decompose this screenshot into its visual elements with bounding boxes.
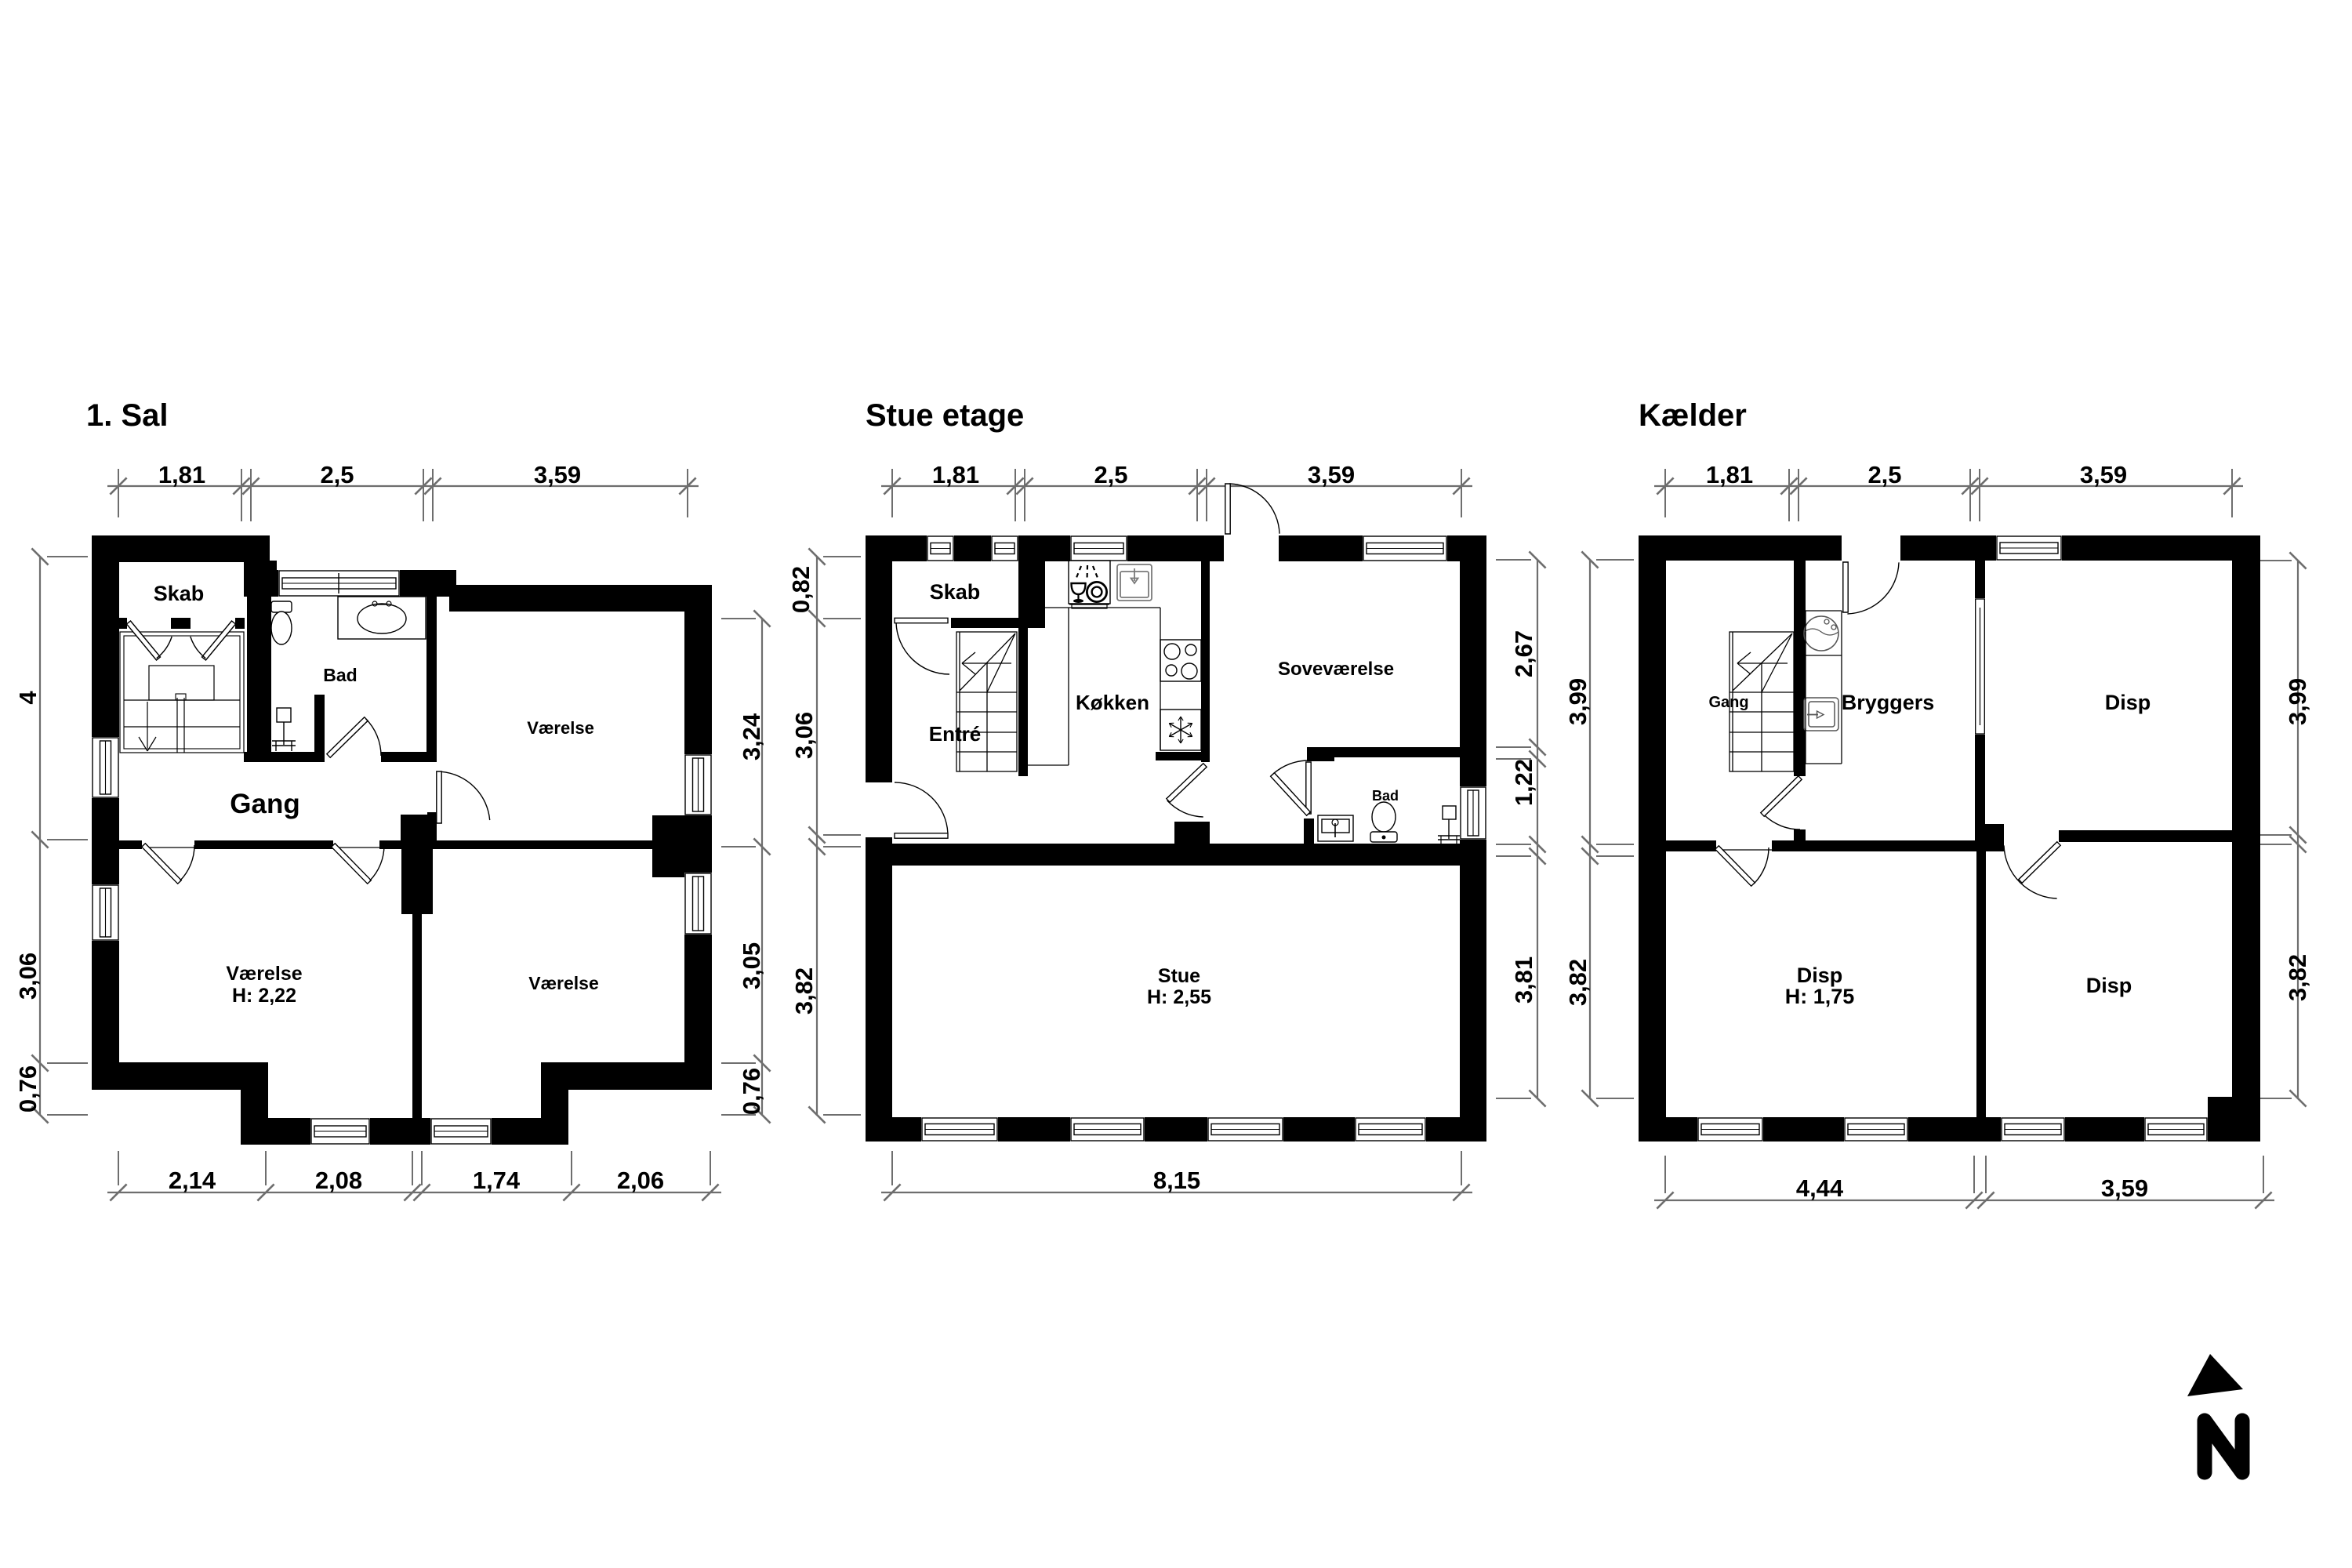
- svg-text:3,06: 3,06: [14, 953, 42, 1000]
- svg-text:1,81: 1,81: [1706, 461, 1753, 488]
- svg-text:2,06: 2,06: [617, 1167, 664, 1194]
- svg-text:Soveværelse: Soveværelse: [1278, 659, 1394, 680]
- svg-text:3,24: 3,24: [738, 713, 765, 760]
- svg-text:0,76: 0,76: [738, 1068, 765, 1115]
- svg-text:4: 4: [14, 691, 42, 705]
- svg-text:4,44: 4,44: [1796, 1174, 1844, 1202]
- svg-text:1,81: 1,81: [158, 461, 205, 488]
- svg-text:3,82: 3,82: [1564, 959, 1592, 1006]
- svg-text:3,59: 3,59: [2080, 461, 2127, 488]
- svg-text:Disp: Disp: [2086, 974, 2132, 997]
- svg-text:1,81: 1,81: [932, 461, 979, 488]
- svg-text:Disp: Disp: [1797, 964, 1843, 987]
- svg-text:2,67: 2,67: [1510, 630, 1537, 677]
- svg-text:Stue: Stue: [1158, 965, 1200, 987]
- svg-text:H: 2,55: H: 2,55: [1147, 986, 1211, 1008]
- svg-text:H: 1,75: H: 1,75: [1785, 985, 1855, 1008]
- svg-text:3,59: 3,59: [534, 461, 581, 488]
- svg-text:3,81: 3,81: [1510, 956, 1537, 1004]
- svg-text:2,14: 2,14: [169, 1167, 216, 1194]
- svg-text:1,74: 1,74: [473, 1167, 521, 1194]
- svg-text:1. Sal: 1. Sal: [86, 398, 169, 433]
- svg-text:Bad: Bad: [323, 665, 357, 685]
- svg-text:Skab: Skab: [154, 582, 205, 605]
- svg-text:3,59: 3,59: [1308, 461, 1355, 488]
- svg-text:Værelse: Værelse: [226, 963, 302, 985]
- svg-text:3,59: 3,59: [2101, 1174, 2148, 1202]
- svg-text:Bryggers: Bryggers: [1842, 691, 1935, 714]
- svg-text:Bad: Bad: [1372, 788, 1399, 804]
- svg-text:3,05: 3,05: [738, 942, 765, 989]
- svg-text:3,82: 3,82: [2284, 954, 2311, 1001]
- svg-text:3,99: 3,99: [1564, 678, 1592, 725]
- svg-text:Disp: Disp: [2105, 691, 2151, 714]
- svg-text:Gang: Gang: [1708, 694, 1748, 711]
- svg-text:3,06: 3,06: [790, 712, 818, 759]
- svg-text:2,5: 2,5: [1867, 461, 1901, 488]
- svg-text:Entré: Entré: [929, 722, 981, 746]
- svg-text:H: 2,22: H: 2,22: [232, 985, 296, 1007]
- svg-text:2,08: 2,08: [315, 1167, 362, 1194]
- svg-text:Kælder: Kælder: [1639, 398, 1747, 433]
- svg-text:Skab: Skab: [930, 580, 981, 604]
- svg-text:2,5: 2,5: [320, 461, 354, 488]
- svg-text:Stue etage: Stue etage: [866, 398, 1024, 433]
- svg-text:Gang: Gang: [230, 789, 299, 819]
- svg-text:3,99: 3,99: [2284, 678, 2311, 725]
- svg-text:1,22: 1,22: [1510, 759, 1537, 806]
- svg-text:2,5: 2,5: [1094, 461, 1127, 488]
- svg-text:8,15: 8,15: [1153, 1167, 1200, 1194]
- svg-text:0,76: 0,76: [14, 1065, 42, 1112]
- svg-text:0,82: 0,82: [787, 566, 815, 613]
- svg-text:Værelse: Værelse: [528, 973, 599, 993]
- svg-text:Køkken: Køkken: [1076, 691, 1149, 714]
- svg-text:Værelse: Værelse: [527, 718, 594, 738]
- svg-text:3,82: 3,82: [790, 967, 818, 1014]
